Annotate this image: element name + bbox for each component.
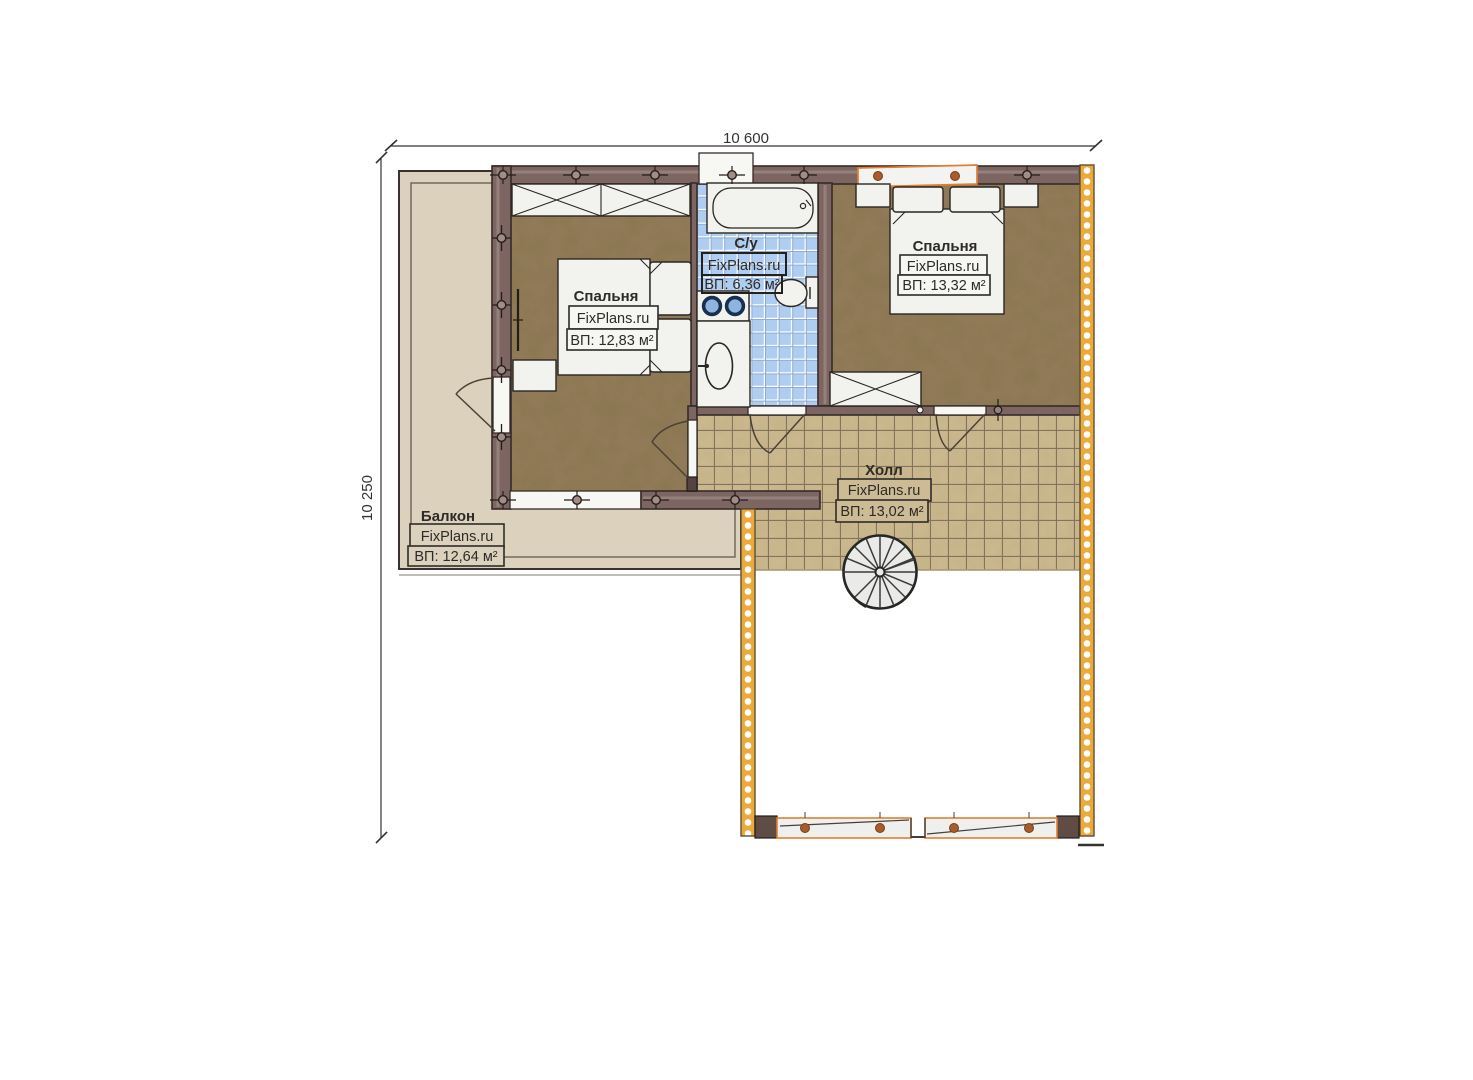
svg-text:ВП: 6,36 м²: ВП: 6,36 м²: [704, 277, 779, 293]
svg-text:FixPlans.ru: FixPlans.ru: [421, 529, 494, 545]
svg-text:ВП: 12,83 м²: ВП: 12,83 м²: [570, 333, 653, 349]
svg-text:ВП: 13,32 м²: ВП: 13,32 м²: [902, 278, 985, 294]
svg-text:FixPlans.ru: FixPlans.ru: [848, 483, 921, 499]
svg-text:10 600: 10 600: [723, 130, 769, 147]
svg-text:ВП: 12,64 м²: ВП: 12,64 м²: [414, 549, 497, 565]
svg-text:Спальня: Спальня: [913, 238, 978, 255]
svg-text:Балкон: Балкон: [421, 508, 475, 525]
svg-text:С/у: С/у: [734, 235, 758, 252]
svg-text:Спальня: Спальня: [574, 288, 639, 305]
svg-text:ВП: 13,02 м²: ВП: 13,02 м²: [840, 504, 923, 520]
svg-text:10 250: 10 250: [359, 475, 376, 521]
svg-text:FixPlans.ru: FixPlans.ru: [708, 258, 781, 274]
svg-text:Холл: Холл: [865, 462, 903, 479]
svg-text:FixPlans.ru: FixPlans.ru: [907, 259, 980, 275]
svg-text:FixPlans.ru: FixPlans.ru: [577, 311, 650, 327]
